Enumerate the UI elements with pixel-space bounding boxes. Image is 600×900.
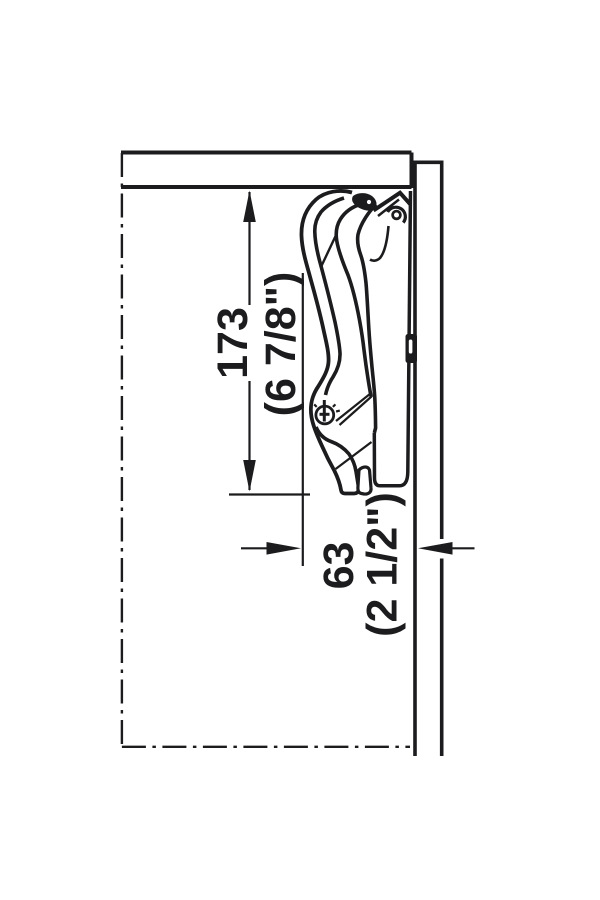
svg-text:63: 63 — [315, 542, 363, 590]
svg-text:(6 7/8"): (6 7/8") — [257, 272, 305, 417]
svg-text:173: 173 — [209, 307, 257, 379]
svg-text:(2 1/2"): (2 1/2") — [359, 492, 407, 637]
